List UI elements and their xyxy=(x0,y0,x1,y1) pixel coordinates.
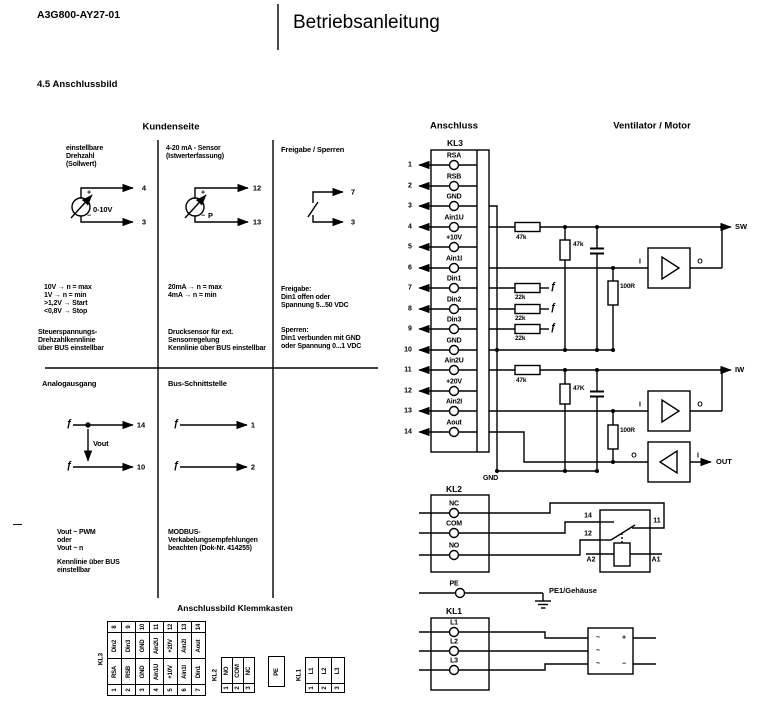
page-title: Betriebsanleitung xyxy=(293,12,440,34)
kl1-label: KL1 xyxy=(446,606,462,616)
strip-cell: 3 xyxy=(335,686,341,689)
strip-cell: Din2 xyxy=(112,639,118,651)
resistor-label-100r: 100R xyxy=(620,427,635,434)
sensor-values: 20mA → n = max 4mA → n = min xyxy=(168,284,222,300)
switch-glyph: ƒ xyxy=(173,461,179,472)
strip-cell: 2 xyxy=(322,686,328,689)
amp-output-label: O xyxy=(697,402,702,409)
strip-cell: +10V xyxy=(168,665,174,678)
bus-lines xyxy=(180,425,247,467)
switch-glyph: ƒ xyxy=(550,323,556,334)
margin-dash: — xyxy=(13,520,22,528)
motor-ac-symbol: ~ xyxy=(596,635,600,642)
setpoint-values: 10V → n = max 1V → n = min >1,2V → Start… xyxy=(44,284,92,316)
amp-input-label: I xyxy=(697,453,699,460)
kl3-terminal-number: 7 xyxy=(408,285,412,292)
strip-cell: 6 xyxy=(182,688,188,691)
kl2-terminal-name: COM xyxy=(446,521,462,528)
kl3-terminal-number: 5 xyxy=(408,244,412,251)
strip-cell: 12 xyxy=(168,624,174,630)
strip-cell: GND xyxy=(140,639,146,652)
resistor-label-100r: 100R xyxy=(620,283,635,290)
kl2-label: KL2 xyxy=(446,484,462,494)
sensor-pin-top: 12 xyxy=(253,184,261,193)
switch-glyph: ƒ xyxy=(66,461,72,472)
kl3-terminal-name: GND xyxy=(447,194,462,201)
anschluss-heading: Anschluss xyxy=(430,121,478,132)
motor-ac-symbol: ~ xyxy=(596,661,600,668)
kl3-terminal-name: Aout xyxy=(446,420,461,427)
relay-contact-11: 11 xyxy=(653,518,660,525)
kl3-terminal-number: 1 xyxy=(408,162,412,169)
resistor-label-22k: 22k xyxy=(515,315,525,322)
motor-minus-symbol: − xyxy=(622,661,626,668)
strip-cell: L3 xyxy=(335,667,341,674)
switch-glyph: ƒ xyxy=(550,303,556,314)
kl3-terminal-name: Din2 xyxy=(447,297,461,304)
manual-page: A3G800-AY27-01 Betriebsanleitung 4.5 Ans… xyxy=(0,0,763,718)
resistor-label-22k: 22k xyxy=(515,335,525,342)
kl3-terminal-name: Ain2U xyxy=(444,358,463,365)
strip-cell: NO xyxy=(224,666,230,675)
strip-kl2: NO COM NC 1 2 3 xyxy=(221,657,255,693)
section-title: 4.5 Anschlussbild xyxy=(37,79,117,90)
strip-cell: PE xyxy=(274,668,280,676)
pe-label: PE xyxy=(450,581,459,588)
doc-number: A3G800-AY27-01 xyxy=(37,9,120,21)
strip-cell: 8 xyxy=(112,625,118,628)
kl3-terminal-number: 11 xyxy=(404,367,411,374)
pe-circuit xyxy=(419,589,551,609)
relay-contact-12: 12 xyxy=(584,531,592,538)
setpoint-note: Steuerspannungs- Drehzahlkennlinie über … xyxy=(38,329,104,353)
relay-coil-a1: A1 xyxy=(652,557,661,564)
strip-kl3-label: KL3 xyxy=(98,653,105,665)
kl3-terminal-name: GND xyxy=(447,338,462,345)
strip-cell: 1 xyxy=(309,686,315,689)
kl3-terminal-name: Din3 xyxy=(447,317,461,324)
bus-pin-top: 1 xyxy=(251,421,255,430)
vout-label: Vout xyxy=(93,439,109,448)
kl3-terminal-number: 10 xyxy=(404,347,412,354)
signal-sw-label: SW xyxy=(735,222,747,231)
kl3-terminal-number: 3 xyxy=(408,203,412,210)
klemmkasten-heading: Anschlussbild Klemmkasten xyxy=(177,603,293,613)
kl3-terminal-number: 6 xyxy=(408,265,412,272)
sensor-pin-bottom: 13 xyxy=(253,218,261,227)
strip-kl3: 8 9 10 11 12 13 14 Din2 Din3 GND Ain2U +… xyxy=(107,621,206,696)
strip-cell: 5 xyxy=(168,688,174,691)
kl1-terminal-name: L1 xyxy=(450,620,458,627)
resistor-label-47k: 47k xyxy=(573,241,583,248)
setpoint-heading: einstellbare Drehzahl (Sollwert) xyxy=(66,145,103,169)
switch-glyph: ƒ xyxy=(550,282,556,293)
strip-cell: RSB xyxy=(126,665,132,677)
kl1-motor-circuit xyxy=(419,618,656,690)
enable-values: Freigabe: Din1 offen oder Spannung 5...5… xyxy=(281,286,349,310)
strip-cell: 3 xyxy=(140,688,146,691)
kl3-terminal-name: Ain2I xyxy=(446,399,462,406)
setpoint-pin-bottom: 3 xyxy=(142,218,146,227)
sensor-minus-sign: − xyxy=(201,213,205,220)
sensor-plus-sign: + xyxy=(201,190,205,197)
kl1-terminal-name: L2 xyxy=(450,639,458,646)
strip-cell: GND xyxy=(140,665,146,678)
signal-iw-label: IW xyxy=(735,365,744,374)
strip-cell: 1 xyxy=(224,686,230,689)
strip-cell: RSA xyxy=(112,665,118,677)
strip-kl1: L1 L2 L3 1 2 3 xyxy=(305,657,345,693)
kl3-terminal-name: Din1 xyxy=(447,276,461,283)
kl1-terminal-name: L3 xyxy=(450,658,458,665)
amp-output-label: O xyxy=(631,453,636,460)
kl3-terminal-name: RSB xyxy=(447,174,461,181)
strip-cell: +20V xyxy=(168,639,174,652)
strip-kl2-label: KL2 xyxy=(212,669,219,681)
strip-cell: 3 xyxy=(246,686,252,689)
strip-cell: 9 xyxy=(126,625,132,628)
kl3-terminal-number: 13 xyxy=(404,408,412,415)
pe-earth-label: PE1/Gehäuse xyxy=(549,586,597,595)
kl3-terminal-number: 12 xyxy=(404,388,412,395)
resistor-label-22k: 22k xyxy=(515,294,525,301)
strip-cell: Ain1I xyxy=(182,665,188,679)
signal-out-label: OUT xyxy=(716,457,732,466)
resistor-label-47k: 47k xyxy=(516,234,526,241)
kl3-terminal-number: 2 xyxy=(408,183,412,190)
ventilator-heading: Ventilator / Motor xyxy=(613,121,691,132)
sensor-note: Drucksensor für ext. Sensorregelung Kenn… xyxy=(168,329,266,353)
switch-glyph: ƒ xyxy=(66,419,72,430)
strip-cell: Aout xyxy=(196,639,202,652)
pot-plus-sign: + xyxy=(87,190,91,197)
bus-pin-bottom: 2 xyxy=(251,463,255,472)
gnd-label: GND xyxy=(483,475,498,482)
schematic-linework xyxy=(0,0,763,718)
strip-cell: 11 xyxy=(154,624,160,630)
kl2-terminal-name: NC xyxy=(449,501,459,508)
enable-switch-symbol xyxy=(308,192,343,222)
relay-contact-14: 14 xyxy=(584,513,592,520)
kl3-terminal-number: 8 xyxy=(408,306,412,313)
analog-out-note: Vout ~ PWM oder Vout ~ n xyxy=(57,529,96,553)
strip-cell: 1 xyxy=(112,688,118,691)
strip-cell: Din3 xyxy=(126,639,132,651)
kl3-terminal-number: 9 xyxy=(408,326,412,333)
sensor-heading: 4-20 mA - Sensor (Istwerterfassung) xyxy=(166,145,224,161)
relay-coil-a2: A2 xyxy=(587,557,596,564)
strip-cell: 7 xyxy=(196,688,202,691)
analog-out-heading: Analogausgang xyxy=(42,379,96,388)
enable-pin-bottom: 3 xyxy=(351,218,355,227)
analog-out-note2: Kennlinie über BUS einstellbar xyxy=(57,559,120,575)
resistor-label-47k: 47K xyxy=(573,385,584,392)
strip-cell: NC xyxy=(246,666,252,674)
strip-cell: Din1 xyxy=(196,665,202,677)
strip-cell: L2 xyxy=(322,667,328,674)
strip-kl1-label: KL1 xyxy=(296,669,303,681)
strip-cell: Ain2I xyxy=(182,639,188,653)
resistor-label-47k: 47k xyxy=(516,377,526,384)
strip-cell: 13 xyxy=(182,624,188,630)
input-circuit xyxy=(489,206,731,482)
kl2-terminal-name: NO xyxy=(449,543,459,550)
strip-cell: L1 xyxy=(309,667,315,674)
strip-cell: Ain2U xyxy=(154,637,160,653)
kl3-label: KL3 xyxy=(447,138,463,148)
bus-note: MODBUS- Verkabelungsempfehlungen beachte… xyxy=(168,529,258,553)
strip-cell: 10 xyxy=(140,624,146,630)
motor-plus-symbol: + xyxy=(622,635,626,642)
amp-input-label: I xyxy=(639,402,641,409)
strip-cell: COM xyxy=(235,664,241,677)
analog-pin-bottom: 10 xyxy=(137,463,145,472)
strip-pe: PE xyxy=(268,656,285,687)
kundenseite-heading: Kundenseite xyxy=(142,122,199,133)
pot-minus-sign: − xyxy=(87,213,91,220)
strip-cell: 14 xyxy=(196,624,202,630)
kl3-terminal-name: +20V xyxy=(446,379,462,386)
enable-pin-top: 7 xyxy=(351,188,355,197)
sensor-symbol xyxy=(185,188,248,222)
kl3-terminal-number: 4 xyxy=(408,224,412,231)
amp-output-label: O xyxy=(697,259,702,266)
bus-heading: Bus-Schnittstelle xyxy=(168,379,227,388)
analog-pin-top: 14 xyxy=(137,421,145,430)
kl3-terminal-name: Ain1U xyxy=(444,215,463,222)
strip-cell: Ain1U xyxy=(154,663,160,679)
enable-heading: Freigabe / Sperren xyxy=(281,145,344,154)
enable-note: Sperren: Din1 verbunden mit GND oder Spa… xyxy=(281,327,361,351)
motor-ac-symbol: ~ xyxy=(596,648,600,655)
switch-glyph: ƒ xyxy=(173,419,179,430)
kl3-terminal-name: RSA xyxy=(447,153,461,160)
amp-input-label: I xyxy=(639,259,641,266)
strip-cell: 2 xyxy=(235,686,241,689)
kl3-terminal-number: 14 xyxy=(404,429,412,436)
kl3-terminal-name: Ain1I xyxy=(446,256,462,263)
setpoint-pin-top: 4 xyxy=(142,184,146,193)
strip-cell: 2 xyxy=(126,688,132,691)
sensor-p-label: P xyxy=(208,211,213,220)
pot-range-label: 0-10V xyxy=(93,205,112,214)
strip-cell: 4 xyxy=(154,688,160,691)
kl3-terminal-name: +10V xyxy=(446,235,462,242)
